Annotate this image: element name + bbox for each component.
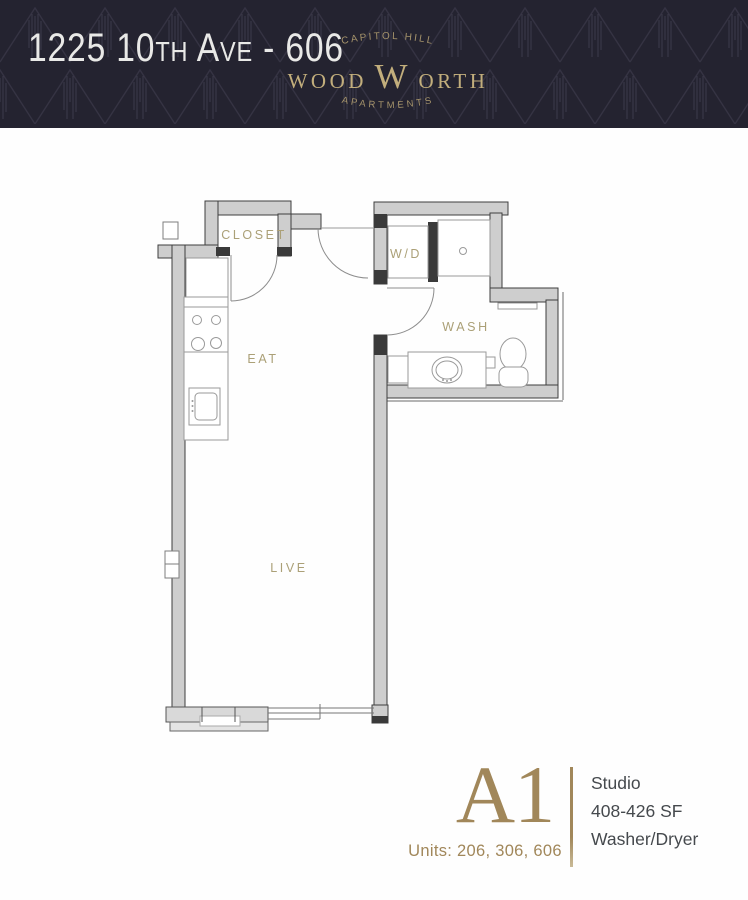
units-list: Units: 206, 306, 606 — [400, 842, 570, 861]
closet-door — [231, 255, 277, 301]
wordmark-orth: ORTH — [418, 69, 488, 93]
wordmark-wood: WOOD — [288, 69, 367, 93]
info-divider — [570, 767, 573, 867]
site-header: 1225 10th Ave - 606 CAPITOL HILL WOOD W … — [0, 0, 748, 128]
kitchen-sink — [189, 388, 220, 425]
closet-label: CLOSET — [221, 228, 287, 242]
plan-code: A1 — [440, 754, 570, 836]
eat-label: EAT — [247, 352, 278, 366]
brand-capitol-hill-arc: CAPITOL HILL — [340, 31, 435, 47]
toilet — [499, 338, 528, 387]
woodworth-logo: CAPITOL HILL WOOD W ORTH APARTMENTS — [283, 8, 493, 120]
bathroom-fixtures — [388, 220, 537, 388]
entry-door — [318, 228, 368, 278]
wordmark-big-w: W — [374, 57, 411, 96]
shelf-ledge — [498, 303, 537, 309]
svg-text:CAPITOL HILL: CAPITOL HILL — [340, 31, 435, 47]
kitchen-fixtures — [184, 258, 228, 440]
live-label: LIVE — [270, 561, 308, 575]
floor-plan-drawing: CLOSET W/D WASH EAT LIVE — [148, 188, 582, 744]
living-room-window — [166, 707, 268, 731]
vanity-sink — [388, 352, 495, 388]
unit-type: Studio — [591, 769, 698, 797]
unit-details: Studio 408-426 SF Washer/Dryer — [591, 769, 698, 853]
unit-laundry: Washer/Dryer — [591, 825, 698, 853]
unit-size: 408-426 SF — [591, 797, 698, 825]
stove — [184, 307, 228, 352]
brand-wordmark: WOOD W ORTH — [288, 57, 489, 96]
svg-text:APARTMENTS: APARTMENTS — [341, 95, 436, 111]
wash-label: WASH — [442, 320, 489, 334]
bathroom-door — [387, 288, 434, 335]
refrigerator — [186, 258, 228, 297]
laundry-label: W/D — [390, 247, 422, 261]
balcony-door-window — [268, 704, 374, 719]
door-jambs — [216, 214, 438, 723]
shower — [438, 220, 490, 276]
brand-apartments-arc: APARTMENTS — [341, 95, 436, 111]
page: 1225 10th Ave - 606 CAPITOL HILL WOOD W … — [0, 0, 748, 900]
